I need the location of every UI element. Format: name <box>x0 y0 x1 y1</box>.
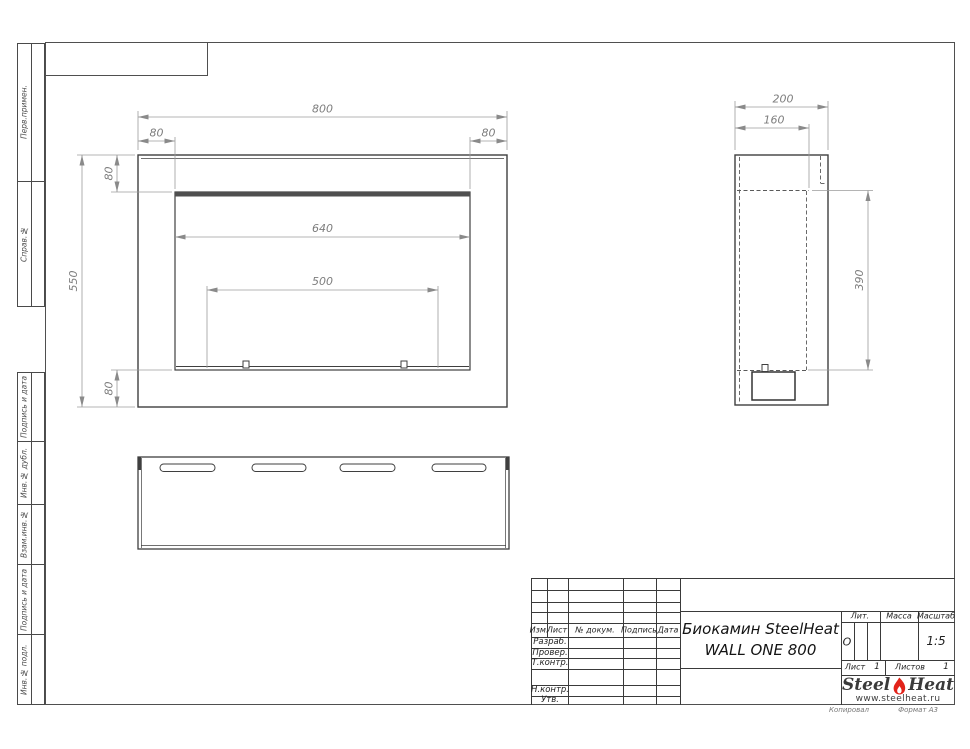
side-view <box>735 155 828 405</box>
vent-slot-2 <box>252 464 306 472</box>
dim-front-opening-width: 640 <box>312 222 333 235</box>
tb-sheet-value: 1 <box>874 662 880 672</box>
vent-slot-1 <box>160 464 215 472</box>
tb-col-podpis: Подпись <box>621 626 657 635</box>
tb-row-utv: Утв. <box>541 695 559 705</box>
tb-mass-label: Масса <box>886 612 912 621</box>
document-title-line2: WALL ONE 800 <box>705 640 817 660</box>
bottom-view <box>138 457 509 549</box>
footer-kopiroval: Копировал <box>829 706 869 714</box>
vent-slot-4 <box>432 464 486 472</box>
clip-left <box>243 361 249 368</box>
tb-scale-label: Масштаб <box>917 612 955 621</box>
tb-lit-value: О <box>843 636 852 649</box>
tb-row-nkontr: Н.контр. <box>531 685 569 695</box>
logo-word-heat: Heat <box>908 675 954 695</box>
dim-side-depth: 200 <box>773 93 794 106</box>
tb-col-data: Дата <box>658 626 679 635</box>
opening-top-band <box>175 192 470 197</box>
tb-scale-value: 1:5 <box>926 634 945 648</box>
footer-format: Формат А3 <box>898 706 938 714</box>
tb-col-dokum: № докум. <box>575 626 614 635</box>
tb-lit-label: Лит. <box>851 612 869 621</box>
flame-icon <box>892 677 907 695</box>
tb-sheet-label: Лист <box>845 663 865 672</box>
tb-col-list: Лист <box>547 626 567 635</box>
vent-slot-3 <box>340 464 395 472</box>
burner-tab <box>762 365 768 372</box>
dim-front-burner-width: 500 <box>312 275 333 288</box>
tb-sheets-value: 1 <box>943 662 949 672</box>
steelheat-logo: Steel Heat <box>841 677 955 695</box>
document-title-line1: Биокамин SteelHeat <box>682 619 839 639</box>
tb-sheets-label: Листов <box>895 663 925 672</box>
drawing-sheet: Перв.примен. Справ.№ Подпись и дата Инв.… <box>0 0 970 749</box>
dim-front-flange-bottom: 80 <box>103 382 116 396</box>
tb-row-razrab: Разраб. <box>533 637 566 647</box>
dim-front-height: 550 <box>67 271 80 292</box>
dim-front-flange-right: 80 <box>482 127 496 140</box>
dim-front-flange-left: 80 <box>150 127 164 140</box>
clip-right <box>401 361 407 368</box>
dim-front-width: 800 <box>312 103 333 116</box>
burner-box <box>752 372 795 400</box>
tb-row-tkontr: Т.контр. <box>532 658 569 668</box>
document-title: Биокамин SteelHeat WALL ONE 800 <box>680 611 841 668</box>
dim-side-inner-depth: 160 <box>764 114 785 127</box>
tb-row-prover: Провер. <box>532 648 567 658</box>
title-block: Изм. Лист № докум. Подпись Дата Разраб. … <box>531 578 955 705</box>
dim-front-flange-top: 80 <box>103 167 116 181</box>
dim-side-opening-height: 390 <box>853 270 866 291</box>
tb-col-izm: Изм. <box>530 626 549 635</box>
logo-word-steel: Steel <box>842 675 890 695</box>
logo-url: www.steelheat.ru <box>856 694 941 704</box>
